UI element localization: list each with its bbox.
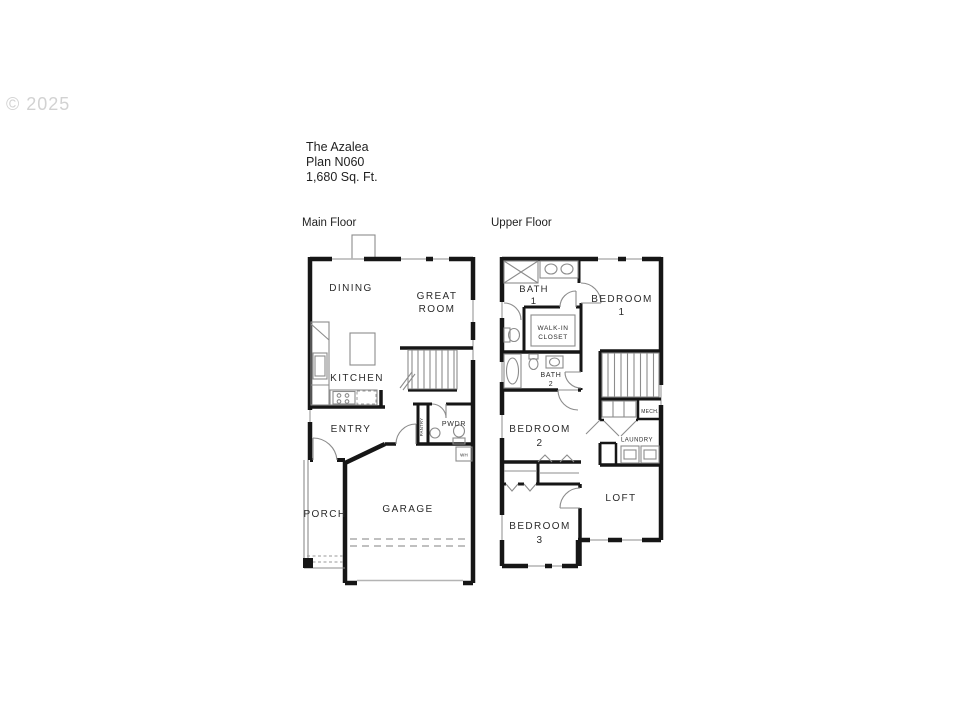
plan-name: The Azalea [306,140,369,154]
title-block: The Azalea Plan N060 1,680 Sq. Ft. [306,140,378,184]
toilet-icon [504,328,510,342]
room-label-pantry: PANTRY [419,418,424,437]
room-label-bath2-1: BATH [541,372,562,379]
dishwasher-icon [357,391,376,404]
floor-plan-page: © 2025 The Azalea Plan N060 1,680 Sq. Ft… [0,0,960,720]
main-stairs [400,350,457,391]
upper-stairs [602,353,659,397]
room-label-walkin-1: WALK-IN [537,325,568,332]
room-label-great-room-1: GREAT [417,291,458,302]
room-label-bath1-2: 1 [531,296,537,307]
garage-dashed-lines [350,539,468,546]
room-label-bedroom1-1: BEDROOM [591,294,652,305]
room-label-bath1-1: BATH [519,284,548,295]
vanity-icon [540,261,578,278]
room-label-wh: WH [460,453,468,458]
room-label-bedroom2-2: 2 [537,438,544,449]
room-label-bedroom1-2: 1 [619,307,626,318]
mech-shelves [602,401,636,417]
room-label-porch: PORCH [303,509,346,520]
room-label-entry: ENTRY [331,424,372,435]
room-label-walkin-2: CLOSET [538,334,568,341]
room-label-powder: PWDR [442,421,466,428]
room-label-bedroom3-1: BEDROOM [509,521,570,532]
copyright-watermark: © 2025 [6,94,70,114]
bay-window [352,235,375,259]
range-icon [333,392,355,405]
main-floor-caption: Main Floor [302,217,356,229]
upper-floor-plan: BATH 1 BEDROOM 1 WALK-IN CLOSET BATH 2 B… [502,257,661,566]
room-label-bedroom2-1: BEDROOM [509,424,570,435]
bath2-fixtures [504,354,563,388]
kitchen-island [350,333,375,365]
room-label-loft: LOFT [605,493,636,504]
upper-floor-caption: Upper Floor [491,217,552,229]
main-floor-plan: DINING GREAT ROOM KITCHEN ENTRY PWDR PAN… [303,235,473,583]
room-label-garage: GARAGE [382,504,433,515]
plan-number: Plan N060 [306,155,364,169]
room-label-mech: MECH. [641,409,659,415]
room-label-kitchen: KITCHEN [330,373,384,384]
room-label-bath2-2: 2 [549,381,554,388]
upper-door-arcs [504,283,601,508]
kitchen-counters [311,322,377,405]
room-label-bedroom3-2: 3 [537,535,544,546]
room-label-great-room-2: ROOM [419,304,456,315]
floor-plan-svg: © 2025 The Azalea Plan N060 1,680 Sq. Ft… [0,0,960,720]
porch-post [303,558,313,568]
sink-icon [430,428,440,438]
room-label-laundry: LAUNDRY [621,438,653,444]
plan-sqft: 1,680 Sq. Ft. [306,170,378,184]
room-label-dining: DINING [329,283,372,294]
